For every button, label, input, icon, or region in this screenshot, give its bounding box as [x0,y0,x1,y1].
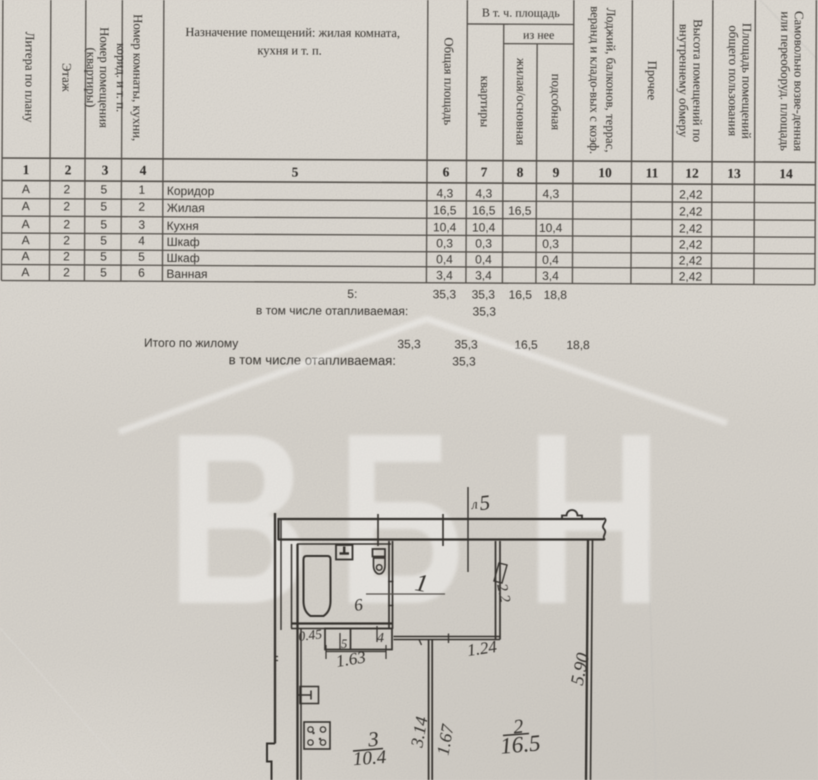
svg-text:А: А [22,182,30,196]
svg-text:Самовольно возве-денная: Самовольно возве-денная [791,11,806,152]
svg-text:или переоборуд. площадь: или переоборуд. площадь [778,11,793,151]
svg-text:35,3: 35,3 [397,337,421,351]
svg-text:3,4: 3,4 [475,268,492,282]
svg-text:2,42: 2,42 [679,222,703,236]
svg-text:Лоджий, балконов, террас,: Лоджий, балконов, террас, [603,8,618,153]
svg-text:5: 5 [341,637,347,651]
svg-text:13: 13 [727,166,741,181]
svg-text:3,4: 3,4 [436,268,453,282]
svg-text:0,3: 0,3 [542,237,559,251]
svg-text:2: 2 [63,199,70,213]
svg-text:5: 5 [100,200,107,214]
svg-text:2: 2 [65,162,72,177]
svg-text:16,5: 16,5 [508,204,532,218]
svg-text:12: 12 [685,166,699,181]
svg-text:0,4: 0,4 [542,253,559,267]
svg-text:2,42: 2,42 [679,254,703,268]
svg-text:16,5: 16,5 [509,288,533,302]
svg-text:2: 2 [63,249,70,263]
svg-text:Общая площадь: Общая площадь [441,37,455,125]
svg-text:6: 6 [138,266,145,280]
svg-text:внутреннему обмеру: внутреннему обмеру [676,24,691,138]
svg-text:4,3: 4,3 [436,186,453,200]
svg-text:35,3: 35,3 [472,287,496,301]
svg-text:Площадь помещений: Площадь помещений [739,23,754,139]
svg-text:16,5: 16,5 [433,203,457,217]
svg-text:в том числе отапливаемая:: в том числе отапливаемая: [256,303,408,318]
svg-text:18,8: 18,8 [544,288,568,302]
svg-text:А: А [21,265,29,279]
svg-text:Литера по плану: Литера по плану [22,32,36,123]
svg-text:Назначение помещений: жилая ко: Назначение помещений: жилая комната, [185,25,400,40]
svg-text:10: 10 [598,165,612,180]
svg-text:7: 7 [481,165,488,180]
svg-text:Шкаф: Шкаф [167,235,200,249]
svg-text:11: 11 [646,165,659,180]
svg-text:35,3: 35,3 [454,337,478,351]
svg-text:10.4: 10.4 [352,747,387,770]
svg-text:Жилая: Жилая [167,201,205,215]
svg-text:1: 1 [139,183,146,197]
svg-text:общего пользования: общего пользования [726,25,741,136]
svg-text:0,4: 0,4 [475,252,492,266]
svg-text:подсобная: подсобная [549,74,563,131]
svg-text:5: 5 [100,266,107,280]
svg-text:Высота помещений по: Высота помещений по [690,19,705,142]
svg-text:1: 1 [23,162,30,177]
svg-text:корид. и т. п.: корид. и т. п. [114,43,128,112]
svg-text:9: 9 [553,165,560,180]
svg-text:Прочее: Прочее [645,61,659,101]
svg-text:2,42: 2,42 [679,238,703,252]
svg-text:кухня и т. п.: кухня и т. п. [257,43,321,57]
svg-text:3: 3 [138,218,145,232]
svg-text:А: А [22,233,30,247]
svg-text:(квартиры): (квартиры) [84,47,98,107]
svg-text:Этаж: Этаж [59,63,73,92]
svg-text:16,5: 16,5 [472,203,496,217]
svg-text:веранд и кладо-вых с коэф.: веранд и кладо-вых с коэф. [587,6,602,154]
svg-text:2,42: 2,42 [679,205,703,219]
svg-text:из нее: из нее [523,28,554,42]
svg-text:2,42: 2,42 [679,270,703,284]
svg-text:Номер комнаты, кухни,: Номер комнаты, кухни, [130,14,145,141]
svg-text:5: 5 [292,165,299,180]
svg-text:2,42: 2,42 [679,188,703,202]
svg-text:В т. ч. площадь: В т. ч. площадь [482,6,561,20]
svg-text:2: 2 [63,265,70,279]
svg-text:6: 6 [443,164,450,179]
svg-text:2: 2 [63,217,70,231]
svg-text:Шкаф: Шкаф [166,251,199,265]
svg-text:0,3: 0,3 [436,236,453,250]
svg-text:4: 4 [138,234,145,248]
svg-text:10,4: 10,4 [539,221,563,235]
svg-text:А: А [22,199,30,213]
svg-text:5: 5 [100,218,107,232]
svg-text:А: А [21,249,29,263]
svg-text:10,4: 10,4 [433,220,457,234]
svg-text:квартиры: квартиры [478,76,492,128]
svg-text:2: 2 [64,182,71,196]
svg-text:Итого по жилому: Итого по жилому [144,336,238,350]
svg-text:Коридор: Коридор [167,184,215,198]
svg-text:18,8: 18,8 [566,338,590,352]
svg-text:жилая/основная: жилая/основная [514,57,528,145]
svg-text:2: 2 [138,200,145,214]
svg-text:4,3: 4,3 [542,187,559,201]
svg-text:5: 5 [100,250,107,264]
svg-text:0,4: 0,4 [436,252,453,266]
svg-text:5:: 5: [347,287,357,301]
svg-text:4,3: 4,3 [475,186,492,200]
svg-text:3: 3 [102,163,109,178]
svg-text:Кухня: Кухня [167,219,199,233]
svg-text:5: 5 [100,234,107,248]
svg-text:5: 5 [101,183,108,197]
svg-text:35,3: 35,3 [452,354,476,368]
svg-text:А: А [22,217,30,231]
svg-text:14: 14 [779,166,793,181]
svg-text:35,3: 35,3 [433,287,457,301]
svg-text:Ванная: Ванная [166,267,207,281]
svg-text:0.45: 0.45 [298,626,324,644]
svg-text:10,4: 10,4 [472,220,496,234]
svg-text:4: 4 [377,631,384,646]
svg-text:2: 2 [63,233,70,247]
svg-text:8: 8 [517,165,524,180]
svg-text:0,3: 0,3 [475,236,492,250]
svg-text:35,3: 35,3 [473,304,497,318]
svg-text:5: 5 [138,250,145,264]
svg-text:3,4: 3,4 [542,269,559,283]
svg-text:16.5: 16.5 [499,730,541,758]
svg-text:4: 4 [140,163,147,178]
